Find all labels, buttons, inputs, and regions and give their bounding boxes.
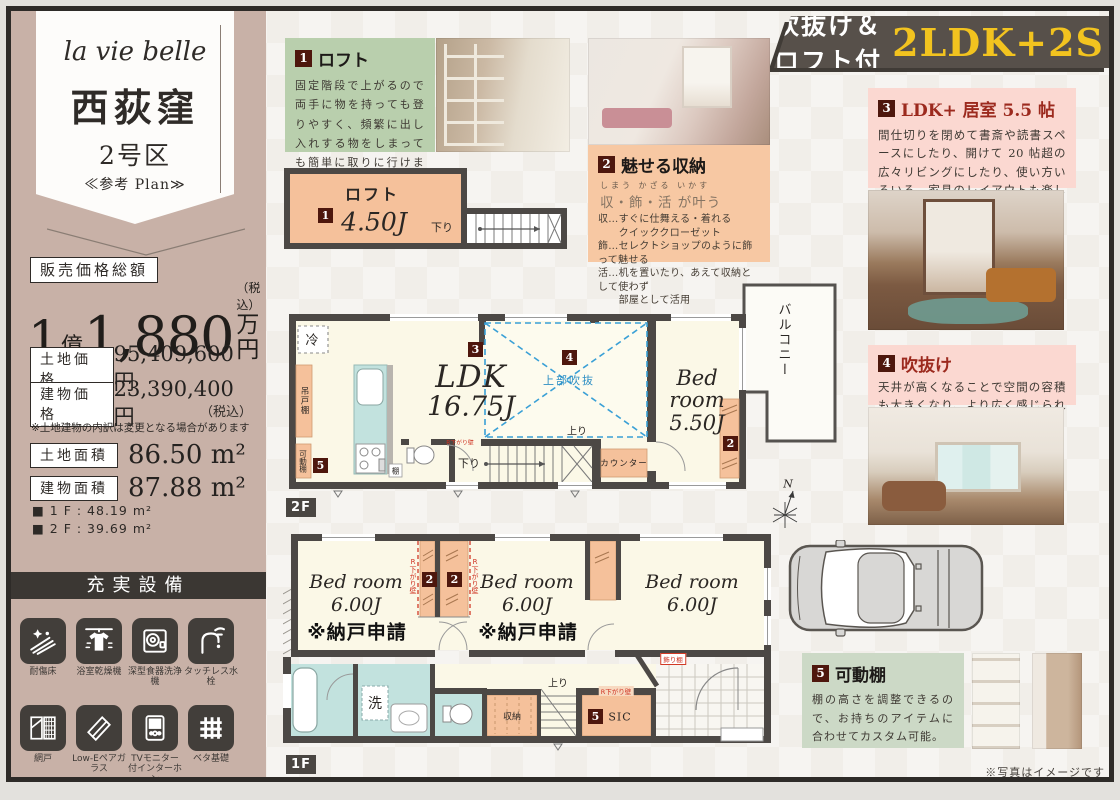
floor-tag-2f: 2F (286, 498, 316, 517)
r-wall-note-right: R下がり壁 (470, 558, 480, 594)
bedroom-label-line1: Bed (676, 366, 717, 390)
feature-body: 棚の高さを調整できるので、お持ちのアイテムに合わせてカスタム可能。 (812, 691, 954, 747)
equipment-item: 網戸 (20, 705, 66, 764)
plan-badge-5: 5 (588, 709, 603, 724)
fridge-label: 冷 (305, 330, 318, 349)
photo-doorway (926, 202, 992, 292)
plan-reference: ≪参考 Plan≫ (36, 174, 234, 194)
land-area-label: 土地面積 (30, 443, 118, 468)
touchless-faucet-icon (188, 618, 234, 664)
loft-stairs-down-label: 下り (431, 219, 453, 235)
feature-number-badge: 5 (812, 665, 829, 682)
bedroom1-size: 6.00J (331, 594, 381, 616)
banner-prefix: 吹抜け＆ロフト付 (774, 6, 886, 78)
equipment-label: 深型食器洗浄機 (127, 667, 183, 688)
stairs-down-label: 下り (458, 455, 480, 471)
bedroom1-label: Bed room (309, 571, 402, 593)
equipment-label: 網戸 (15, 754, 71, 764)
r-wall-note: R下がり壁 (446, 438, 473, 447)
photo-display-storage-room (588, 38, 770, 145)
bedroom-label-line2: room (669, 388, 724, 412)
feature-shelf-box: 5 可動棚 棚の高さを調整できるので、お持ちのアイテムに合わせてカスタム可能。 (802, 653, 964, 748)
photo-loft-shelves (436, 38, 570, 152)
photo-sofa (986, 268, 1056, 302)
plan-badge-4: 4 (562, 350, 577, 365)
equipment-item: 深型食器洗浄機 (132, 618, 178, 688)
scratch-resistant-floor-icon (20, 618, 66, 664)
bedroom-size-label: 5.50J (669, 411, 724, 435)
sic-label: SIC (608, 711, 631, 724)
laundry-label: 洗 (368, 693, 382, 713)
first-floor-plan: Bed room 6.00J ※納戸申請 2 2 R下がり壁 R下がり壁 Bed… (283, 528, 783, 760)
photo-hallway (1032, 653, 1082, 749)
storage-label: 収納 (503, 710, 521, 723)
r-wall-note-sic: R下がり壁 (599, 686, 634, 696)
equipment-label: ベタ基礎 (183, 754, 239, 764)
floor-area-2f: ■ 2 F : 39.69 m² (32, 521, 152, 536)
equipment-item: 耐傷床 (20, 618, 66, 677)
building-area-row: 建物面積 87.88 m² (30, 473, 246, 503)
ldk-label: LDK (435, 359, 507, 395)
feature-subtitle: 収・飾・活 が叶う (600, 191, 760, 211)
shelf-label: 棚 (392, 465, 400, 476)
loft-size-label: 4.50J (341, 208, 407, 237)
feature-ldk-box: 3 LDK+ 居室 5.5 帖 間仕切りを閉めて書斎や読書スペースにしたり、開け… (868, 88, 1076, 188)
bedroom2-label: Bed room (480, 571, 573, 593)
lot-number: 2号区 (36, 136, 234, 172)
feature-title: 可動棚 (835, 661, 886, 686)
brand-pennant: la vie belle 西荻窪 2号区 ≪参考 Plan≫ (36, 11, 234, 224)
banner-plan-type: 2LDK+2S (892, 20, 1104, 65)
bedroom3-label: Bed room (645, 571, 738, 593)
photo-living-room (868, 190, 1064, 330)
car-top-view (786, 540, 986, 637)
price-tax-note: （税込） (236, 279, 266, 313)
equipment-label: 耐傷床 (15, 667, 71, 677)
flyer-canvas: la vie belle 西荻窪 2号区 ≪参考 Plan≫ 販売価格総額 1 … (0, 0, 1120, 800)
feature-storage-header: 2 魅せる収納 (598, 152, 760, 177)
deep-dishwasher-icon (132, 618, 178, 664)
plan-badge-5: 5 (313, 458, 328, 473)
equipment-label: タッチレス水栓 (183, 667, 239, 688)
stairs-up-label: 上り (567, 423, 587, 438)
equipment-label: 浴室乾燥機 (71, 667, 127, 677)
void-label: 上部吹抜 (543, 372, 595, 388)
hanging-cupboard-label: 吊戸棚 (298, 387, 310, 416)
land-area-value: 86.50 m² (128, 440, 246, 470)
tv-monitor-intercom-icon (132, 705, 178, 751)
feature-void-header: 4 吹抜け (878, 351, 1066, 376)
feature-loft-box: 1 ロフト 固定階段で上がるので両手に物を持っても登りやすく、頻繁に出し入れする… (285, 38, 435, 152)
ldk-size-label: 16.75J (427, 392, 515, 423)
low-e-pair-glass-icon (76, 705, 122, 751)
photo-window (684, 48, 730, 106)
feature-storage-box: 2 魅せる収納 しまう かざる いかす 収・飾・活 が叶う 収…すぐに仕舞える・… (588, 145, 770, 262)
plan-badge-2b: 2 (447, 572, 462, 587)
equipment-label: Low-Eペアガラス (71, 754, 127, 775)
feature-title: LDK+ 居室 5.5 帖 (901, 96, 1055, 121)
bathroom-dryer-icon (76, 618, 122, 664)
photo-vaulted-ceiling-room (868, 407, 1064, 525)
plan-badge-3: 3 (468, 342, 483, 357)
feature-title: 魅せる収納 (621, 152, 706, 177)
pennant-chevron-line (47, 227, 245, 259)
feature-number-badge: 3 (878, 100, 895, 117)
price-breakdown-note: ※土地建物の内訳は変更となる場合があります (31, 420, 249, 435)
photo-sofa (882, 481, 946, 511)
feature-line: クイッククローゼット (598, 227, 760, 241)
plan-badge-2: 2 (723, 436, 738, 451)
equipment-item: タッチレス水栓 (188, 618, 234, 688)
deco-shelf-label: 飾り棚 (660, 653, 686, 665)
feature-title: ロフト (318, 46, 369, 71)
feature-ruby: しまう かざる いかす (600, 180, 760, 191)
property-name: 西荻窪 (36, 77, 234, 132)
building-area-value: 87.88 m² (128, 473, 246, 503)
bedroom2-size: 6.00J (502, 594, 552, 616)
slab-foundation-icon (188, 705, 234, 751)
movable-shelf-label: 可動棚 (298, 450, 309, 473)
photo-windows (938, 445, 1018, 489)
equipment-item: ベタ基礎 (188, 705, 234, 764)
photo-disclaimer: ※写真はイメージです (860, 764, 1105, 780)
bedroom3-size: 6.00J (667, 594, 717, 616)
feature-number-badge: 4 (878, 355, 895, 372)
bedroom2-storage-note: ※納戸申請 (478, 618, 577, 645)
equipment-item: 浴室乾燥機 (76, 618, 122, 677)
photo-shelf-texture (444, 44, 504, 146)
feature-number-badge: 2 (598, 156, 615, 173)
bedroom1-storage-note: ※納戸申請 (307, 618, 406, 645)
screen-door-icon (20, 705, 66, 751)
feature-loft-header: 1 ロフト (295, 46, 425, 71)
equipment-item: TVモニター付インターホン (132, 705, 178, 785)
r-wall-note-left: R下がり壁 (408, 558, 418, 594)
loft-floor-plan: 1 ロフト 4.50J 下り (284, 166, 576, 254)
floor-tag-1f: 1F (286, 755, 316, 774)
building-area-label: 建物面積 (30, 476, 118, 501)
counter-label: カウンター (600, 457, 648, 469)
balcony-label: バルコニー (774, 303, 793, 378)
photo-bed (602, 108, 672, 128)
land-area-row: 土地面積 86.50 m² (30, 440, 246, 470)
floor-area-1f: ■ 1 F : 48.19 m² (32, 503, 152, 518)
loft-room-label: ロフト (345, 181, 399, 205)
feature-number-badge: 1 (295, 50, 312, 67)
feature-line: 収…すぐに仕舞える・着れる (598, 213, 760, 227)
equipment-title-bar: 充実設備 (11, 572, 266, 599)
feature-title: 吹抜け (901, 351, 952, 376)
plan-badge-2a: 2 (422, 572, 437, 587)
equipment-label: TVモニター付インターホン (127, 754, 183, 785)
feature-line: 飾…セレクトショップのように飾って魅せる (598, 240, 760, 267)
stairs-up-label: 上り (548, 675, 568, 690)
feature-shelf-header: 5 可動棚 (812, 661, 954, 686)
loft-number-badge: 1 (318, 208, 333, 223)
building-price-tax-note: （税込） (30, 401, 252, 420)
headline-banner: 吹抜け＆ロフト付 2LDK+2S (774, 16, 1110, 68)
equipment-item: Low-Eペアガラス (76, 705, 122, 775)
feature-ldk-header: 3 LDK+ 居室 5.5 帖 (878, 96, 1066, 121)
photo-adjustable-shelves (972, 653, 1020, 749)
feature-void-box: 4 吹抜け 天井が高くなることで空間の容積も大きくなり、より広く感じられます。 (868, 345, 1076, 405)
brand-name: la vie belle (36, 37, 234, 67)
